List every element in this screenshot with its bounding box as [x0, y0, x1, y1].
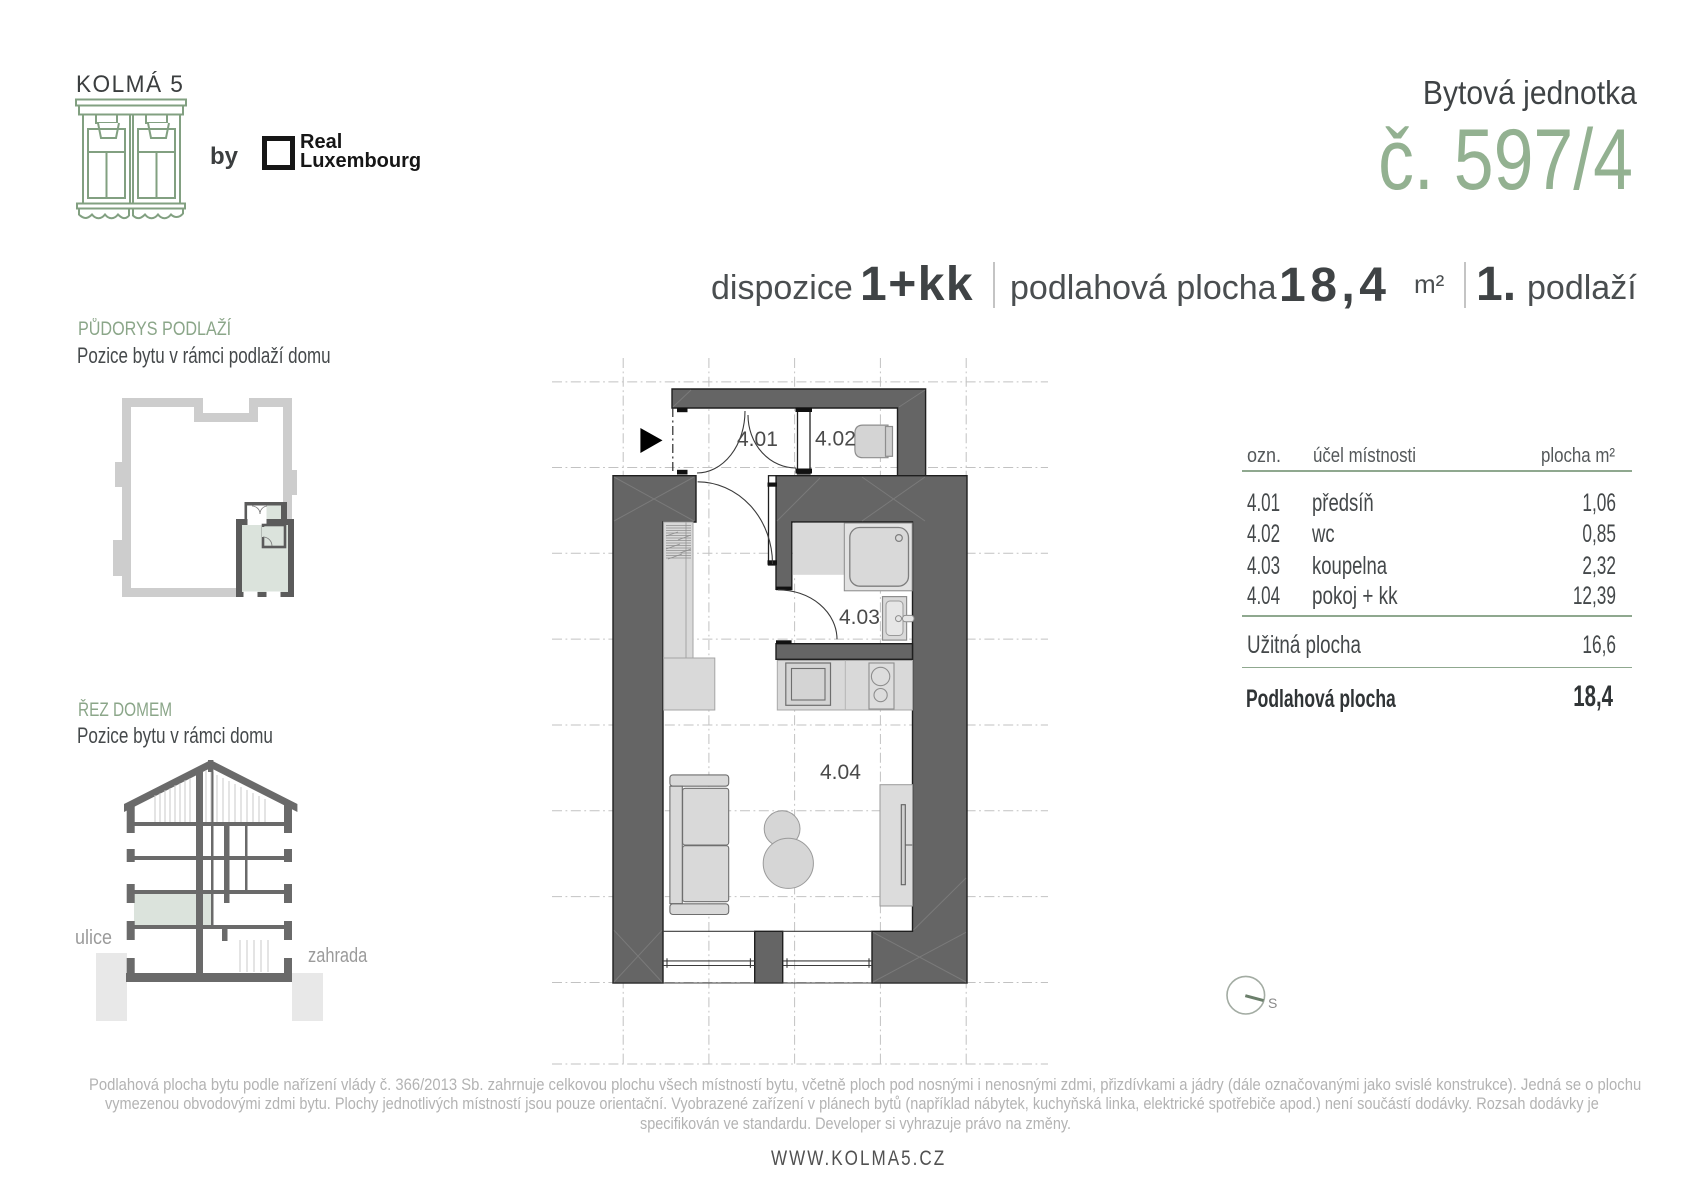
- svg-text:S: S: [1268, 995, 1277, 1011]
